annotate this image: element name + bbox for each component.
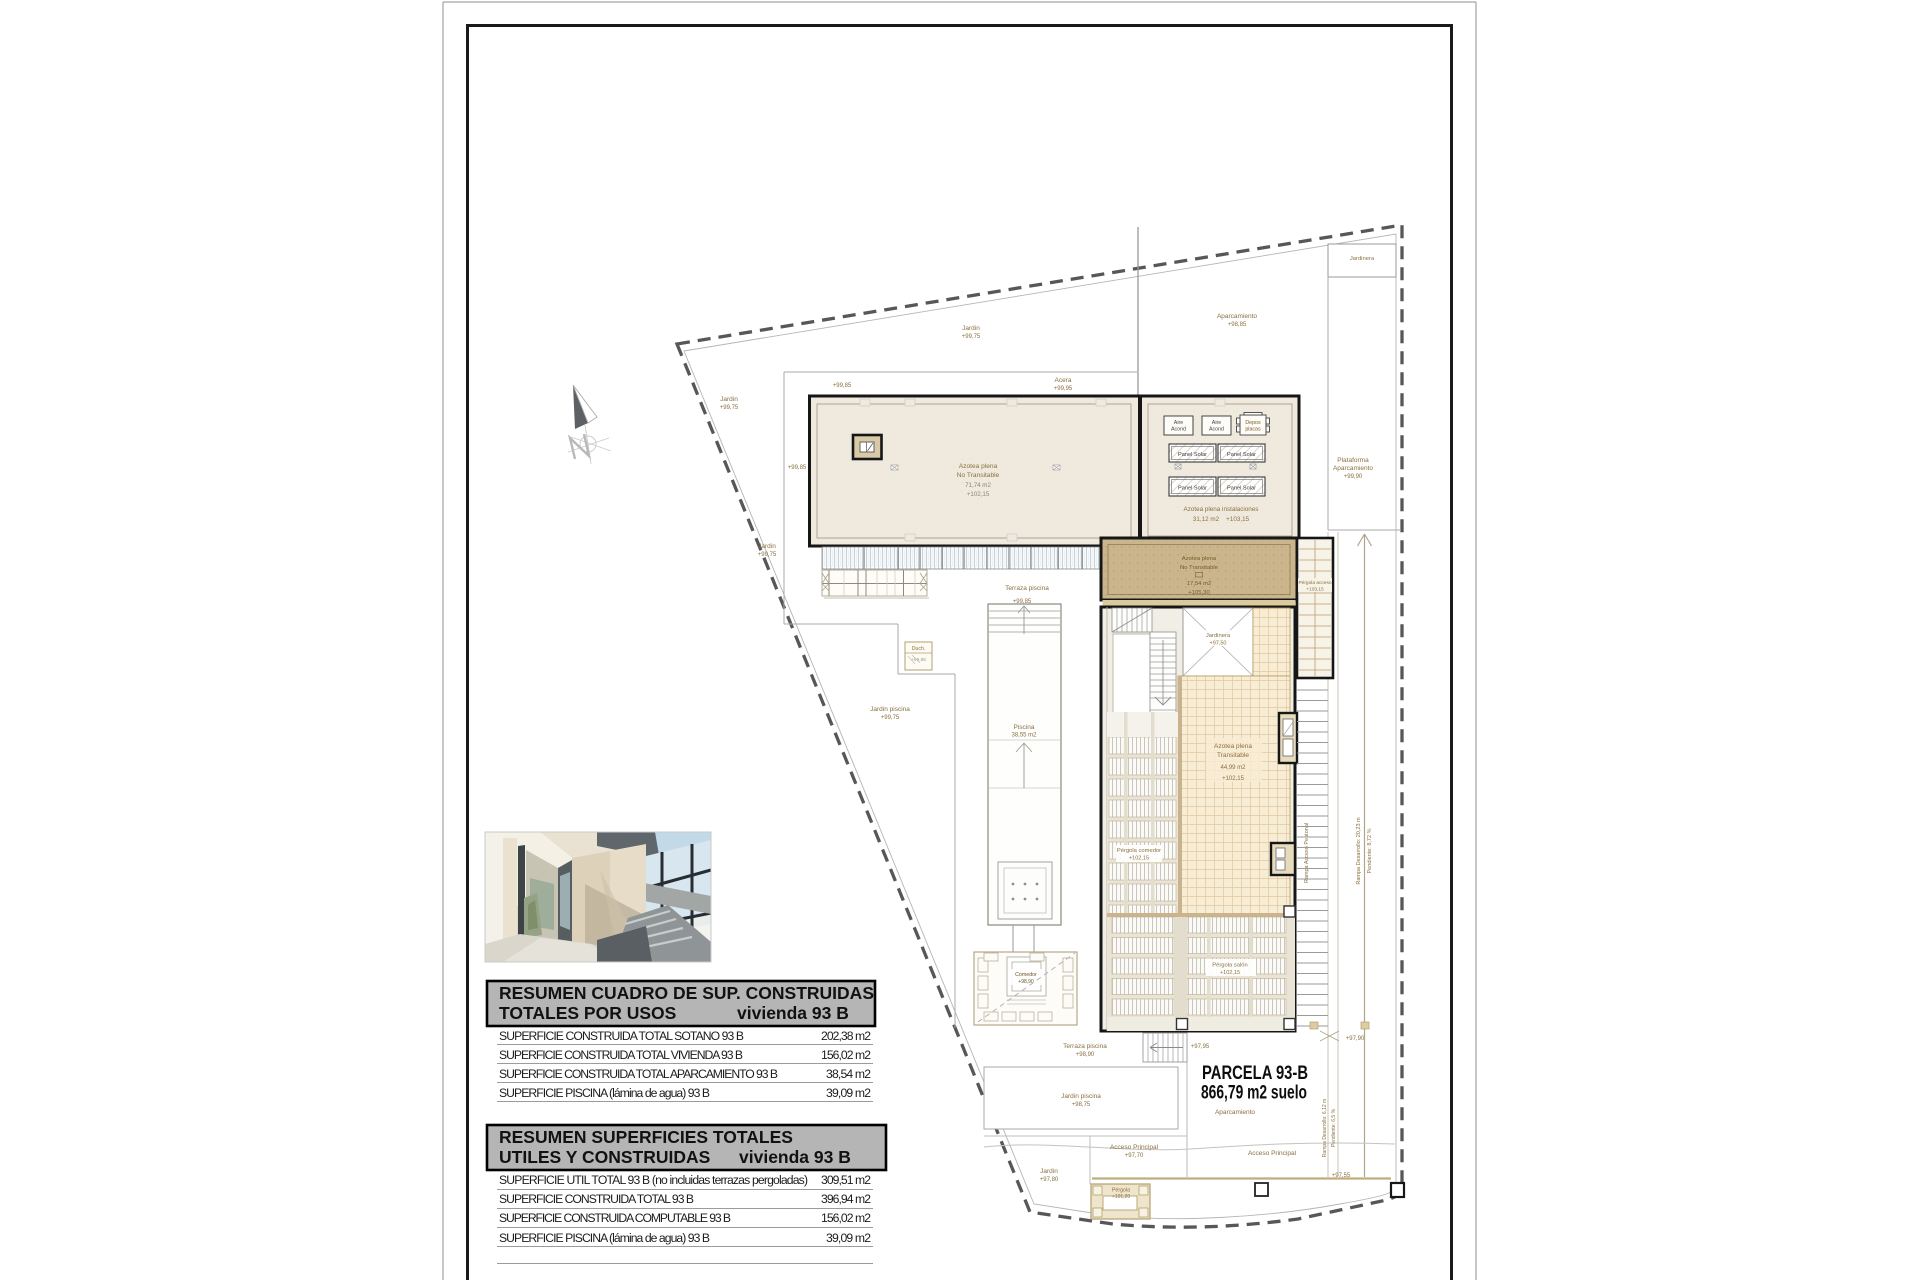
svg-text:Pérgola acceso: Pérgola acceso xyxy=(1298,580,1331,586)
svg-text:+99,75: +99,75 xyxy=(881,715,900,721)
svg-text:+99,75: +99,75 xyxy=(720,405,739,411)
svg-text:Pérgola salón: Pérgola salón xyxy=(1212,963,1247,969)
svg-text:38,54 m2: 38,54 m2 xyxy=(826,1067,871,1081)
svg-text:SUPERFICIE CONSTRUIDA COMPUTAB: SUPERFICIE CONSTRUIDA COMPUTABLE 93 B xyxy=(499,1211,731,1225)
svg-text:+105,30: +105,30 xyxy=(1188,590,1210,596)
svg-text:Azotea plena: Azotea plena xyxy=(1214,743,1252,750)
svg-text:SUPERFICIE CONSTRUIDA TOTAL S: SUPERFICIE CONSTRUIDA TOTAL SOTANO 93 B xyxy=(499,1029,744,1043)
svg-text:Rampa Acceso Peatonal: Rampa Acceso Peatonal xyxy=(1304,823,1310,883)
svg-text:Pendiente: 8,72 %: Pendiente: 8,72 % xyxy=(1367,828,1373,873)
svg-text:31,12 m2 +103,15: 31,12 m2 +103,15 xyxy=(1193,516,1250,523)
svg-text:+99,75: +99,75 xyxy=(758,552,777,558)
svg-text:38,55 m2: 38,55 m2 xyxy=(1011,733,1037,739)
svg-text:Rampa Desarrollo: 6,12 m: Rampa Desarrollo: 6,12 m xyxy=(1322,1099,1328,1157)
svg-text:Jardin: Jardin xyxy=(720,396,738,403)
svg-text:Aparcamiento: Aparcamiento xyxy=(1333,465,1373,472)
svg-text:Acera: Acera xyxy=(1055,377,1072,384)
svg-text:+97,50: +97,50 xyxy=(1210,641,1227,647)
svg-text:+102,15: +102,15 xyxy=(1220,970,1240,976)
svg-text:+99,95: +99,95 xyxy=(1054,386,1073,392)
svg-text:+102,15: +102,15 xyxy=(1222,776,1245,782)
svg-text:+99,85: +99,85 xyxy=(833,383,852,389)
svg-text:SUPERFICIE PISCINA (lámina de: SUPERFICIE PISCINA (lámina de agua) 93 B xyxy=(499,1086,710,1100)
svg-text:Acceso Principal: Acceso Principal xyxy=(1110,1144,1159,1151)
svg-text:Jardin piscina: Jardin piscina xyxy=(870,706,910,713)
svg-text:+98,85: +98,85 xyxy=(1228,322,1247,328)
svg-text:17,54 m2: 17,54 m2 xyxy=(1187,581,1212,587)
svg-text:Pérgola comedor: Pérgola comedor xyxy=(1117,848,1161,854)
svg-text:Azotea plena instalaciones: Azotea plena instalaciones xyxy=(1184,506,1259,513)
svg-text:Piscina: Piscina xyxy=(1014,724,1035,731)
svg-text:Depos: Depos xyxy=(1245,420,1261,426)
svg-text:Aparcamiento: Aparcamiento xyxy=(1217,313,1257,320)
svg-text:Plataforma: Plataforma xyxy=(1337,457,1369,464)
svg-text:156,02 m2: 156,02 m2 xyxy=(821,1048,871,1062)
svg-text:Acceso Principal: Acceso Principal xyxy=(1248,1150,1297,1157)
svg-text:UTILES Y CONSTRUIDAS: UTILES Y CONSTRUIDAS xyxy=(499,1147,710,1167)
svg-text:+99,90: +99,90 xyxy=(1344,474,1363,480)
svg-text:+99,85: +99,85 xyxy=(788,465,807,471)
svg-text:Jardinera: Jardinera xyxy=(1350,256,1375,262)
svg-text:Azotea plena: Azotea plena xyxy=(959,463,998,470)
svg-text:Panel Solar: Panel Solar xyxy=(1178,486,1207,492)
svg-text:No Transitable: No Transitable xyxy=(957,472,1000,479)
svg-text:+99,75: +99,75 xyxy=(962,334,981,340)
svg-text:Jardin: Jardin xyxy=(1040,1168,1058,1175)
svg-text:Comedor: Comedor xyxy=(1015,972,1037,978)
svg-text:+97,95: +97,95 xyxy=(1191,1044,1210,1050)
svg-text:Pérgola: Pérgola xyxy=(1112,1188,1130,1194)
svg-text:SUPERFICIE UTIL TOTAL 93 B (: SUPERFICIE UTIL TOTAL 93 B (no incluidas… xyxy=(499,1173,808,1187)
svg-text:+98,75: +98,75 xyxy=(1072,1102,1091,1108)
svg-text:Acond: Acond xyxy=(1171,427,1186,433)
svg-text:PARCELA 93-B: PARCELA 93-B xyxy=(1202,1063,1308,1084)
svg-text:309,51 m2: 309,51 m2 xyxy=(821,1173,871,1187)
svg-text:SUPERFICIE CONSTRUIDA TOTAL AP: SUPERFICIE CONSTRUIDA TOTAL APARCAMIENTO… xyxy=(499,1067,778,1081)
svg-text:TOTALES POR USOS: TOTALES POR USOS xyxy=(499,1003,676,1023)
svg-text:396,94 m2: 396,94 m2 xyxy=(821,1192,871,1206)
svg-text:Panel Solar: Panel Solar xyxy=(1178,452,1207,458)
svg-text:placas: placas xyxy=(1245,427,1261,433)
svg-text:+103,15: +103,15 xyxy=(1306,587,1324,593)
svg-text:Aire: Aire xyxy=(1212,420,1221,426)
svg-text:Duch.: Duch. xyxy=(912,646,926,652)
svg-text:vivienda 93 B: vivienda 93 B xyxy=(737,1003,849,1023)
svg-text:Acond: Acond xyxy=(1209,427,1224,433)
svg-text:SUPERFICIE CONSTRUIDA TOTAL VI: SUPERFICIE CONSTRUIDA TOTAL VIVIENDA 93 … xyxy=(499,1048,743,1062)
svg-text:39,09 m2: 39,09 m2 xyxy=(826,1086,871,1100)
svg-text:+102,15: +102,15 xyxy=(967,491,990,498)
svg-text:+97,70: +97,70 xyxy=(1125,1153,1144,1159)
svg-text:39,09 m2: 39,09 m2 xyxy=(826,1231,871,1245)
svg-text:Azotea plena: Azotea plena xyxy=(1182,556,1217,562)
svg-text:Aire: Aire xyxy=(1174,420,1183,426)
svg-text:Terraza piscina: Terraza piscina xyxy=(1063,1043,1107,1050)
svg-text:44,99 m2: 44,99 m2 xyxy=(1220,765,1246,771)
svg-text:RESUMEN SUPERFICIES TOTALES: RESUMEN SUPERFICIES TOTALES xyxy=(499,1127,793,1147)
svg-text:Aparcamiento: Aparcamiento xyxy=(1215,1109,1255,1116)
svg-text:SUPERFICIE PISCINA (lámina de: SUPERFICIE PISCINA (lámina de agua) 93 B xyxy=(499,1231,710,1245)
svg-text:Jardin: Jardin xyxy=(962,325,980,332)
svg-text:+98,90: +98,90 xyxy=(1076,1052,1095,1058)
svg-text:Pendiente: 6,5 %: Pendiente: 6,5 % xyxy=(1331,1108,1337,1147)
svg-text:+97,55: +97,55 xyxy=(1332,1173,1351,1179)
svg-text:Panel Solar: Panel Solar xyxy=(1227,486,1256,492)
svg-text:Jardinera: Jardinera xyxy=(1206,633,1231,639)
svg-text:RESUMEN CUADRO DE SUP. CONSTRU: RESUMEN CUADRO DE SUP. CONSTRUIDAS xyxy=(499,983,874,1003)
svg-text:Jardin piscina: Jardin piscina xyxy=(1061,1093,1101,1100)
svg-text:156,02 m2: 156,02 m2 xyxy=(821,1211,871,1225)
svg-text:202,38 m2: 202,38 m2 xyxy=(821,1029,871,1043)
svg-text:Rampa Desarrollo: 20,23 m: Rampa Desarrollo: 20,23 m xyxy=(1356,817,1362,885)
svg-text:+97,90: +97,90 xyxy=(1346,1036,1365,1042)
svg-text:Panel Solar: Panel Solar xyxy=(1227,452,1256,458)
svg-text:866,79 m2 suelo: 866,79 m2 suelo xyxy=(1201,1083,1307,1104)
svg-text:+101,20: +101,20 xyxy=(1112,1194,1130,1200)
svg-text:+97,80: +97,80 xyxy=(1040,1177,1059,1183)
svg-text:Terraza piscina: Terraza piscina xyxy=(1005,585,1049,592)
svg-text:Jardin: Jardin xyxy=(758,543,776,550)
svg-text:vivienda 93 B: vivienda 93 B xyxy=(739,1147,851,1167)
svg-text:+102,15: +102,15 xyxy=(1129,856,1149,862)
svg-text:Transitable: Transitable xyxy=(1217,752,1249,759)
svg-text:No Transitable: No Transitable xyxy=(1180,565,1219,571)
svg-text:SUPERFICIE CONSTRUIDA TOTAL 9: SUPERFICIE CONSTRUIDA TOTAL 93 B xyxy=(499,1192,694,1206)
svg-text:71,74 m2: 71,74 m2 xyxy=(965,482,991,489)
